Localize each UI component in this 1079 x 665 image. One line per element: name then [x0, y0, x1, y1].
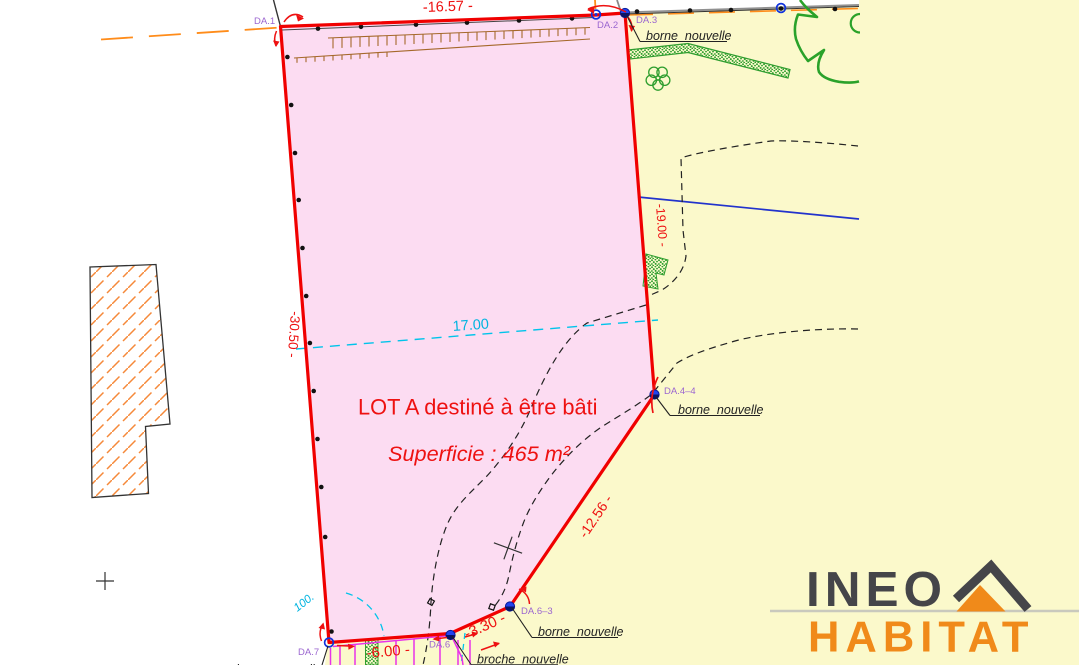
svg-text:DA.7: DA.7 — [298, 647, 319, 658]
svg-text:borne nouvelle: borne nouvelle — [646, 29, 732, 43]
svg-text:HABITAT: HABITAT — [808, 614, 1034, 662]
svg-text:INEO: INEO — [806, 562, 947, 617]
svg-text:Superficie : 465 m²: Superficie : 465 m² — [388, 441, 571, 466]
svg-text:LOT A destiné à être bâti: LOT A destiné à être bâti — [358, 395, 598, 420]
svg-text:DA.6: DA.6 — [429, 640, 450, 651]
svg-text:DA.2: DA.2 — [597, 20, 618, 31]
svg-text:borne nouvelle: borne nouvelle — [538, 625, 624, 639]
svg-text:borne nouvelle: borne nouvelle — [678, 403, 764, 417]
svg-text:-19.00 -: -19.00 - — [653, 203, 670, 247]
svg-text:DA.1: DA.1 — [254, 16, 275, 27]
svg-text:-16.57 -: -16.57 - — [423, 0, 474, 16]
svg-text:DA.4–4: DA.4–4 — [664, 386, 696, 397]
svg-text:17.00: 17.00 — [452, 316, 489, 334]
svg-text:broche nouvelle: broche nouvelle — [477, 653, 569, 665]
svg-text:DA.3: DA.3 — [636, 15, 657, 26]
svg-text:DA.6–3: DA.6–3 — [521, 606, 553, 617]
